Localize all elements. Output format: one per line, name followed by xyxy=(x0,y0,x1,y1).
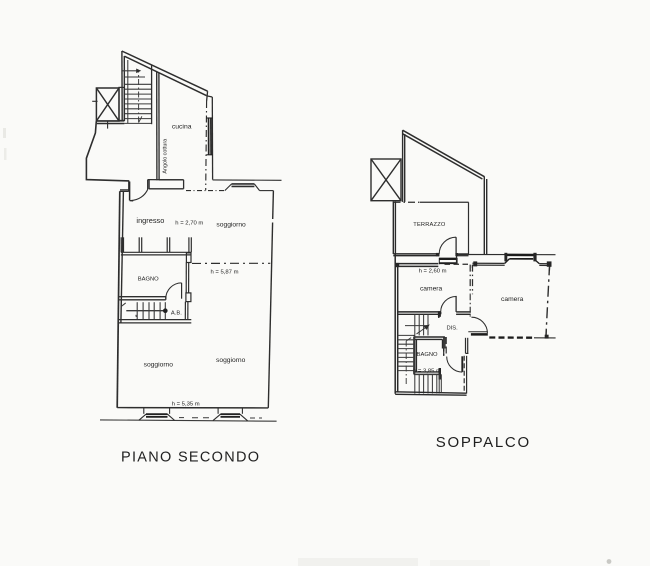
svg-text:h = 2,70 m: h = 2,70 m xyxy=(175,221,203,227)
svg-text:h = 3,85 m: h = 3,85 m xyxy=(413,369,441,375)
svg-text:soggiorno: soggiorno xyxy=(216,221,246,228)
svg-text:soggiorno: soggiorno xyxy=(216,357,246,364)
svg-text:BAGNO: BAGNO xyxy=(417,352,438,358)
svg-text:PIANO SECONDO: PIANO SECONDO xyxy=(121,450,260,466)
svg-text:A.B.: A.B. xyxy=(171,311,182,317)
svg-text:camera: camera xyxy=(501,296,524,303)
svg-text:camera: camera xyxy=(420,286,443,293)
svg-text:ingresso: ingresso xyxy=(136,216,164,225)
svg-text:cucina: cucina xyxy=(172,123,192,130)
svg-text:TERRAZZO: TERRAZZO xyxy=(413,222,446,228)
svg-text:soggiorno: soggiorno xyxy=(144,361,174,368)
svg-text:DIS.: DIS. xyxy=(446,326,458,332)
svg-text:Angolo cottura: Angolo cottura xyxy=(163,139,169,174)
svg-text:h = 5,87 m: h = 5,87 m xyxy=(211,269,239,275)
svg-text:BAGNO: BAGNO xyxy=(138,277,159,283)
svg-text:SOPPALCO: SOPPALCO xyxy=(436,434,531,451)
svg-text:h = 2,60 m: h = 2,60 m xyxy=(419,268,447,274)
svg-text:h = 5,35 m: h = 5,35 m xyxy=(172,401,200,407)
